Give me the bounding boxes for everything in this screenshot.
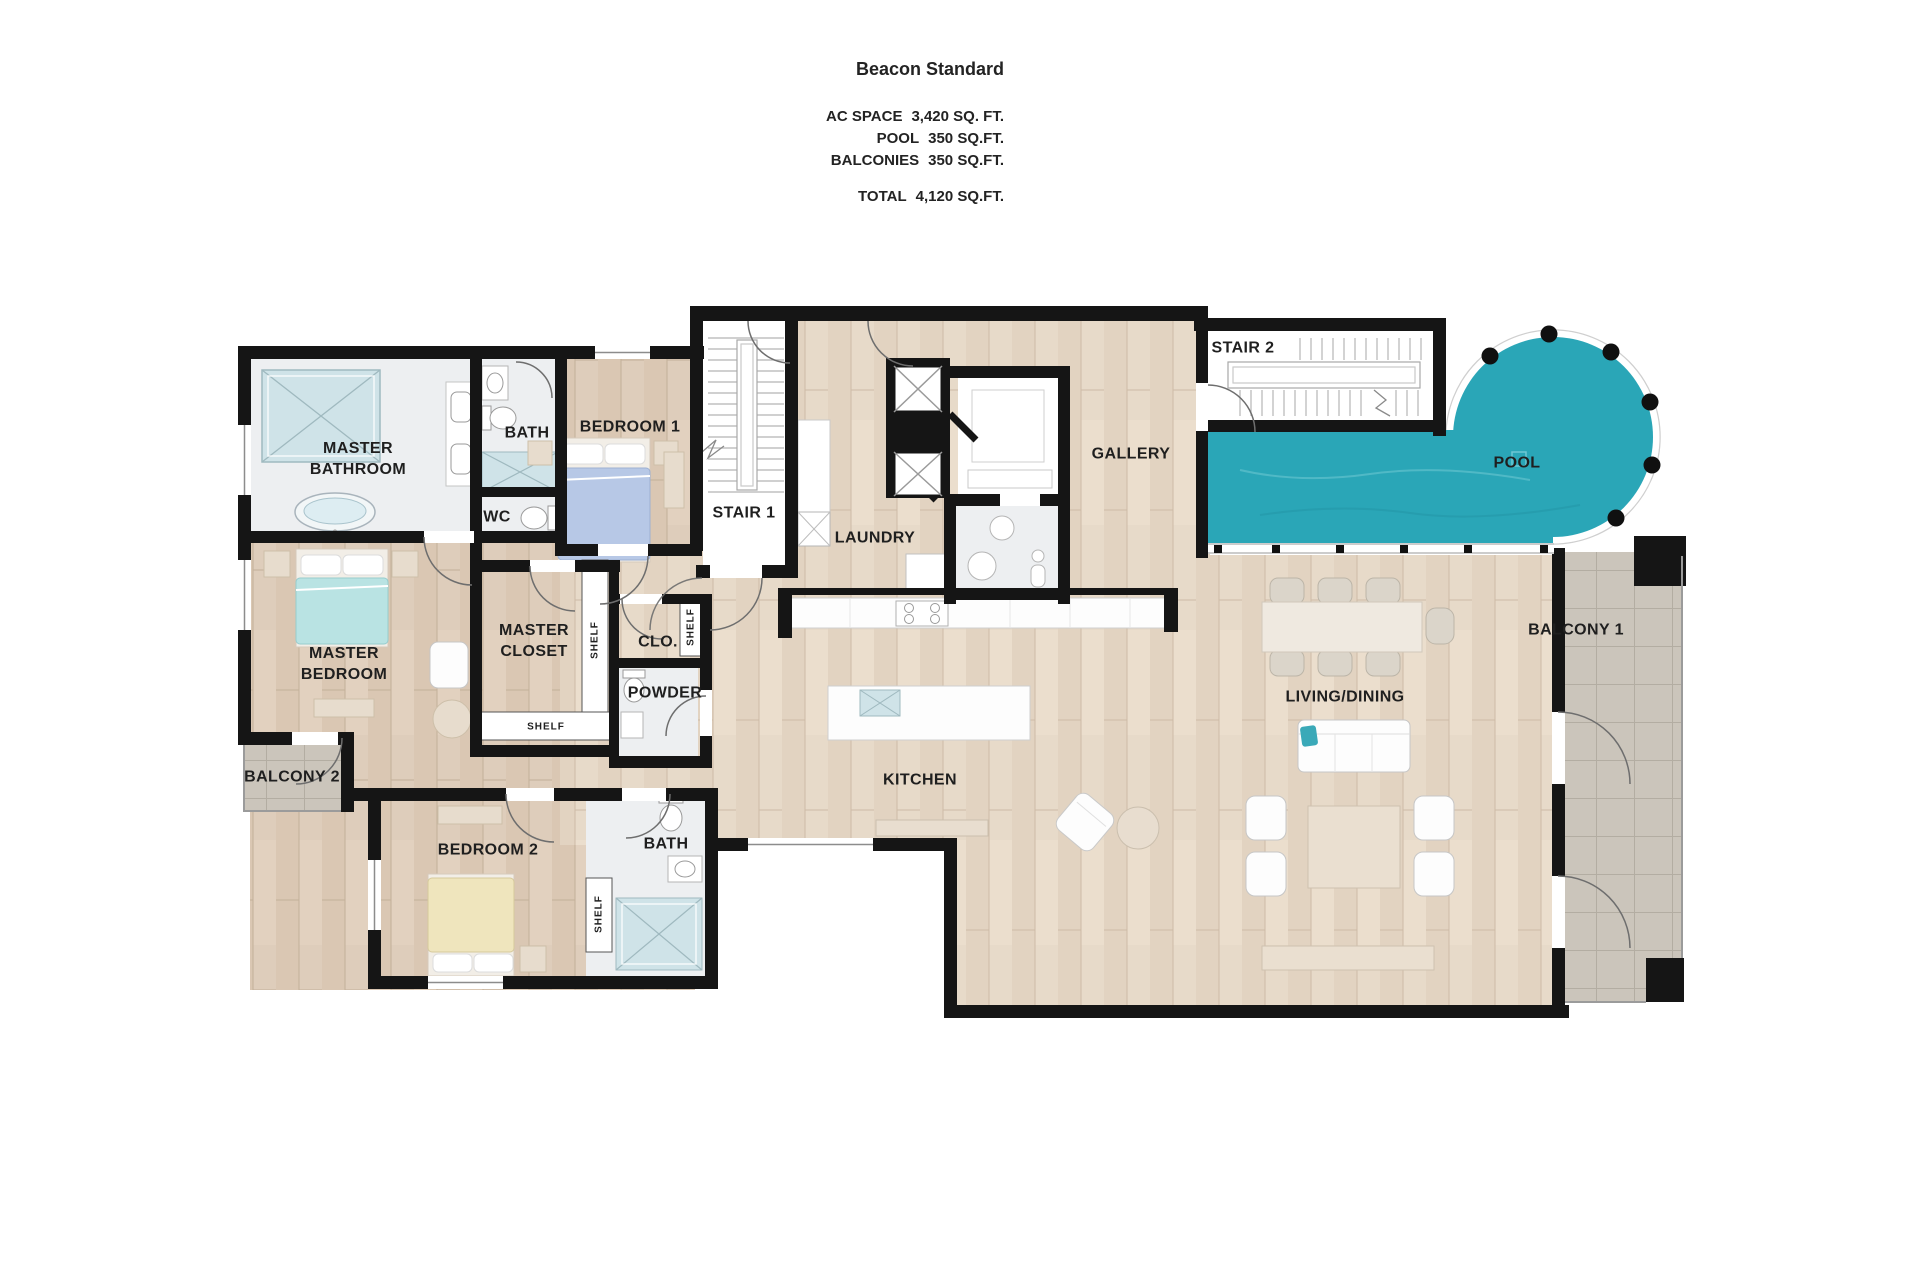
floor-plan-document: Beacon Standard AC SPACE3,420 SQ. FT. PO… xyxy=(0,0,1920,1280)
room-label-gallery: GALLERY xyxy=(1092,445,1171,466)
nightstand xyxy=(264,551,290,577)
bed-bedroom2 xyxy=(428,874,514,976)
wc-toilet xyxy=(521,506,557,530)
room-label-bath-1: BATH xyxy=(505,424,550,445)
teal-pillow xyxy=(1300,725,1319,747)
room-label-bedroom-1: BEDROOM 1 xyxy=(580,418,681,439)
armchair xyxy=(1414,796,1454,840)
room-label-clo: CLO. xyxy=(638,633,678,654)
armchair xyxy=(1246,852,1286,896)
room-label-master-closet: MASTER CLOSET xyxy=(499,621,569,663)
cooktop xyxy=(896,601,948,626)
armchair xyxy=(1246,796,1286,840)
side-table xyxy=(1117,807,1159,849)
room-label-master-bedroom: MASTER BEDROOM xyxy=(301,644,387,686)
master-bench xyxy=(314,699,374,717)
floor-balcony-1 xyxy=(1556,552,1682,1002)
room-label-kitchen: KITCHEN xyxy=(883,771,957,792)
kitchen-island xyxy=(828,686,1030,740)
lobby-bench xyxy=(968,470,1052,488)
room-label-bedroom-2: BEDROOM 2 xyxy=(438,841,539,862)
sofa xyxy=(1298,720,1410,772)
bed-master xyxy=(296,549,388,647)
room-label-living-dining: LIVING/DINING xyxy=(1286,688,1405,709)
room-label-laundry: LAUNDRY xyxy=(835,529,915,550)
room-label-balcony-1: BALCONY 1 xyxy=(1528,621,1624,642)
floor-plan-drawing xyxy=(0,0,1920,1280)
balcony-corner-block xyxy=(1646,958,1684,1002)
room-label-balcony-2: BALCONY 2 xyxy=(244,768,340,789)
room-label-shelf-bath-2: SHELF xyxy=(593,895,606,933)
room-label-shelf-clo: SHELF xyxy=(685,608,698,646)
dining-table xyxy=(1262,602,1422,652)
room-label-wc: WC xyxy=(483,508,510,529)
room-label-powder: POWDER xyxy=(628,684,702,705)
pool-bath-basin xyxy=(968,552,996,580)
nightstand xyxy=(520,946,546,972)
pool-corner-block xyxy=(1634,536,1686,586)
armchair xyxy=(1414,852,1454,896)
room-label-shelf-master-closet-side: SHELF xyxy=(589,621,602,659)
nightstand xyxy=(392,551,418,577)
washer xyxy=(798,512,830,546)
room-label-master-bathroom: MASTER BATHROOM xyxy=(310,439,406,481)
pool-water-lap xyxy=(1208,430,1553,546)
floor-plan: MASTER BATHROOM BATH WC BEDROOM 1 STAIR … xyxy=(0,0,1920,1280)
master-armchair xyxy=(430,642,468,688)
room-label-shelf-master-closet-bottom: SHELF xyxy=(527,721,565,734)
media-console xyxy=(1262,946,1434,970)
room-label-pool: POOL xyxy=(1494,454,1541,475)
bedroom1-bench xyxy=(664,452,684,508)
master-ottoman xyxy=(433,700,471,738)
shower-person-icon xyxy=(1031,550,1045,587)
bed-bedroom1 xyxy=(558,438,650,562)
room-label-bath-2: BATH xyxy=(644,835,689,856)
pool-bath-toilet xyxy=(990,516,1014,540)
pool-glass-wall xyxy=(1208,543,1554,554)
room-label-stair-2: STAIR 2 xyxy=(1212,339,1275,360)
bedroom2-bench xyxy=(438,806,502,824)
kitchen-counter xyxy=(790,598,1170,628)
room-label-stair-1: STAIR 1 xyxy=(713,504,776,525)
nightstand xyxy=(528,441,552,465)
kitchen-sideboard xyxy=(876,820,988,836)
coffee-table xyxy=(1308,806,1400,888)
